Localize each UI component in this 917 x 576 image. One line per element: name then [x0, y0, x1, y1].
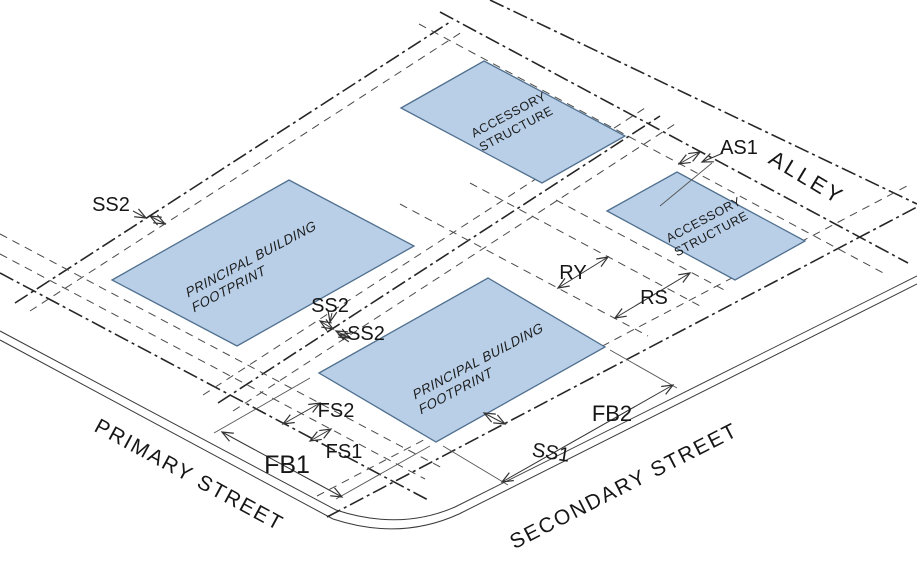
street-label-primary: PRIMARY STREET: [91, 415, 288, 536]
dimension-ss2-mid-west-line: [320, 321, 333, 329]
fb2-extension-left: [443, 446, 508, 485]
fb1-extension-left: [214, 378, 310, 433]
dimension-as1-line: [679, 152, 700, 164]
dimension-label-ss2-mid-lower: SS2: [347, 323, 385, 345]
street-label-secondary: SECONDARY STREET: [506, 419, 742, 554]
dimension-label-ry: RY: [559, 262, 586, 284]
ss2-left-leader-line: [133, 211, 146, 218]
fb2-extension-right: [610, 350, 677, 388]
principal-building-left-footprint: [112, 180, 414, 346]
diagram-canvas: SS2 SS2 SS2 FS2 FS1 FB1 FB2 SS1 RY RS AS…: [0, 0, 917, 576]
dimension-label-ss2-left: SS2: [92, 194, 130, 216]
dimension-label-fs2: FS2: [318, 400, 355, 422]
dimension-label-fs1: FS1: [326, 441, 363, 463]
dimension-label-as1: AS1: [720, 137, 758, 159]
zoning-setback-diagram: SS2 SS2 SS2 FS2 FS1 FB1 FB2 SS1 RY RS AS…: [0, 0, 917, 576]
dimension-ss1-line: [484, 413, 505, 424]
dimension-fs1-line: [310, 429, 331, 441]
dimension-label-rs: RS: [640, 287, 668, 309]
dimension-ss2-left-line: [150, 216, 165, 224]
street-label-alley: ALLEY: [765, 145, 849, 209]
dimension-label-fb2: FB2: [592, 401, 632, 426]
dimension-label-ss2-mid-upper: SS2: [311, 295, 349, 317]
dimension-label-fb1: FB1: [264, 451, 310, 479]
